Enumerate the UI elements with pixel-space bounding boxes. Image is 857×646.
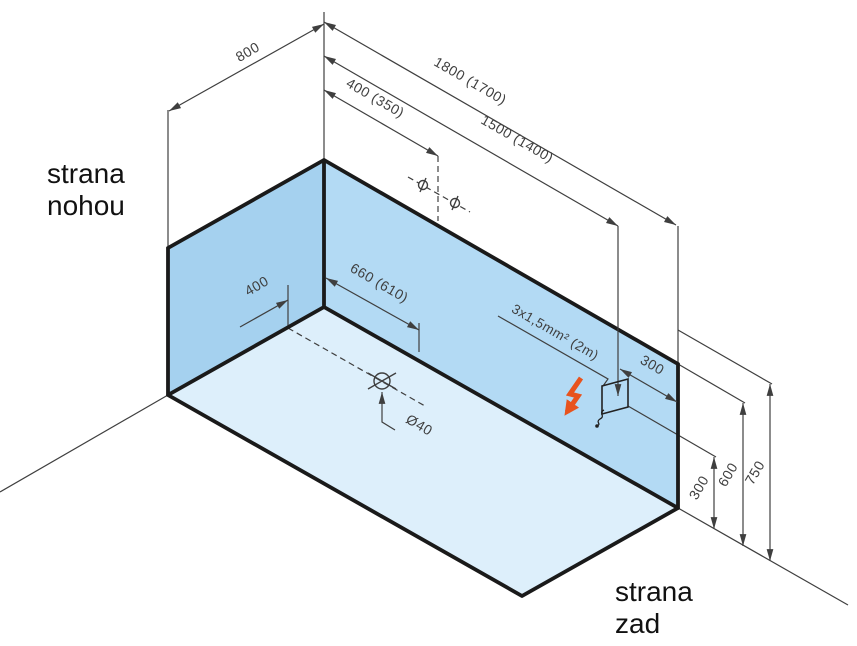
dim-label-height-600: 600 [715,460,741,490]
dash-water-axis [408,177,470,212]
dim-label-height-750: 750 [742,458,768,488]
room-floor-line-right [678,508,848,605]
dim-label-1500: 1500 (1400) [478,111,556,165]
water-connection-point-1 [419,178,428,192]
dim-label-height-300: 300 [686,473,712,503]
installation-diagram: 800 1800 (1700) 1500 (1400) 400 (350) 40… [0,0,857,646]
foot-side-label-line1: strana [47,158,125,189]
ext-750 [678,330,772,384]
foot-side-label-line2: nohou [47,190,125,221]
dim-depth-800 [169,24,324,111]
back-side-label-line1: strana [615,576,693,607]
water-connection-point-2 [451,196,460,210]
cable-end-dot [595,424,599,428]
diagram-canvas: 800 1800 (1700) 1500 (1400) 400 (350) 40… [0,0,857,646]
dim-label-400-350: 400 (350) [344,75,408,121]
ext-600 [678,364,745,403]
room-floor-line-left [0,395,168,492]
dim-label-1800: 1800 (1700) [431,53,509,107]
back-side-label-line2: zad [615,608,660,639]
